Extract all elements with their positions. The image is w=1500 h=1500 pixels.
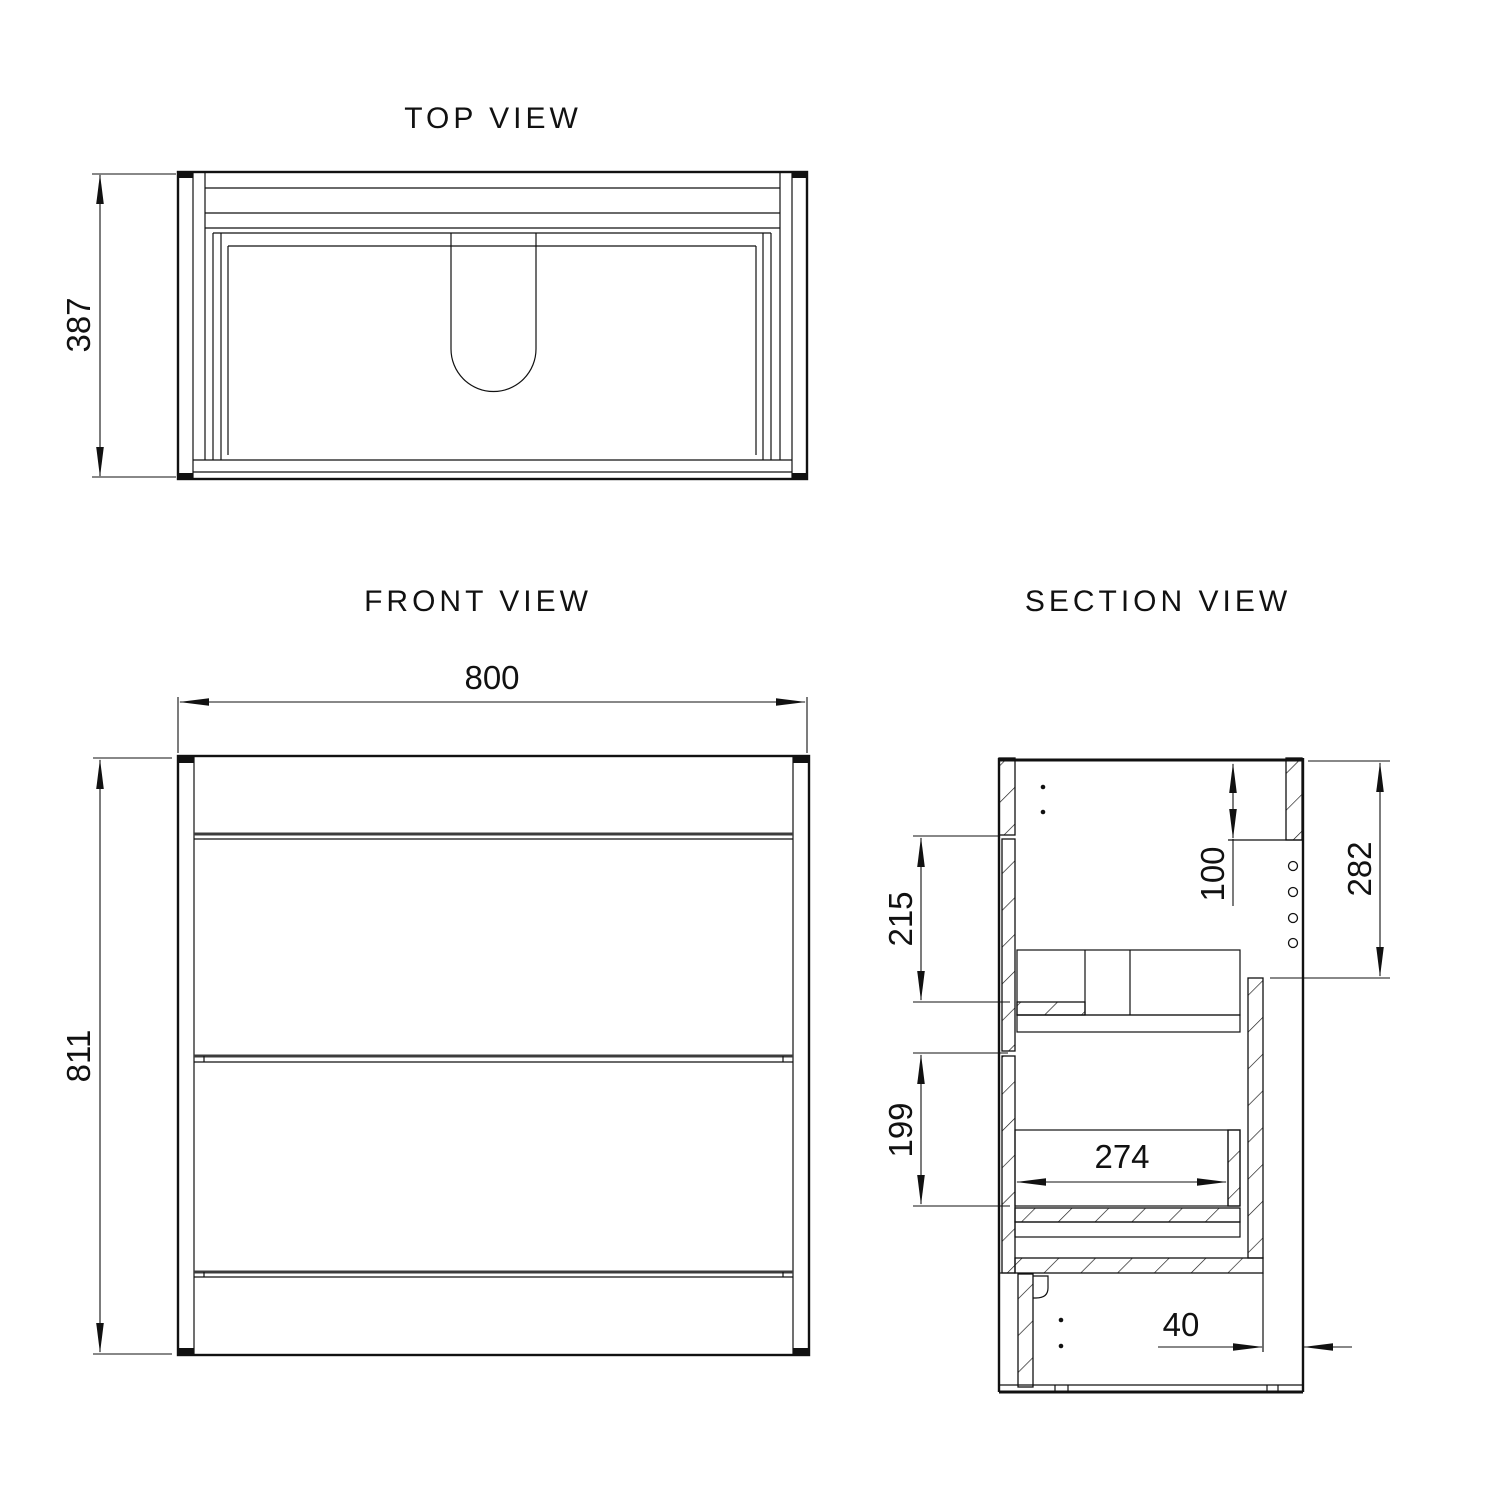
kick-board-section [1018, 1274, 1033, 1387]
dimension-value-cavity-height: 282 [1341, 841, 1378, 896]
fixing-mark [1059, 1344, 1064, 1349]
top-view-title: TOP VIEW [404, 102, 582, 135]
technical-drawing: TOP VIEW 387 [0, 0, 1500, 1500]
front-panel-upper-section [1002, 839, 1015, 1051]
dimension-value-depth: 387 [60, 297, 97, 352]
page-background [0, 0, 1500, 1500]
dimension-value-service-gap: 40 [1163, 1306, 1200, 1343]
dimension-value-lower-opening: 199 [882, 1102, 919, 1157]
fixing-mark [1041, 810, 1046, 815]
back-panel-section [1248, 978, 1263, 1258]
section-view-title: SECTION VIEW [1025, 585, 1291, 618]
dimension-value-width: 800 [464, 659, 519, 696]
dimension-value-upper-opening: 215 [882, 891, 919, 946]
cabinet-bottom-section [1015, 1258, 1263, 1273]
dimension-value-drawer-depth: 274 [1094, 1138, 1149, 1175]
dimension-value-top-thickness: 100 [1194, 846, 1231, 901]
front-view-title: FRONT VIEW [364, 585, 592, 618]
fixing-mark [1041, 785, 1046, 790]
fixing-mark [1059, 1318, 1064, 1323]
front-panel-lower-section [1002, 1056, 1015, 1273]
back-rail-section [1286, 758, 1302, 840]
benchtop-front-edge-section [999, 758, 1015, 835]
dimension-value-height: 811 [60, 1030, 97, 1083]
